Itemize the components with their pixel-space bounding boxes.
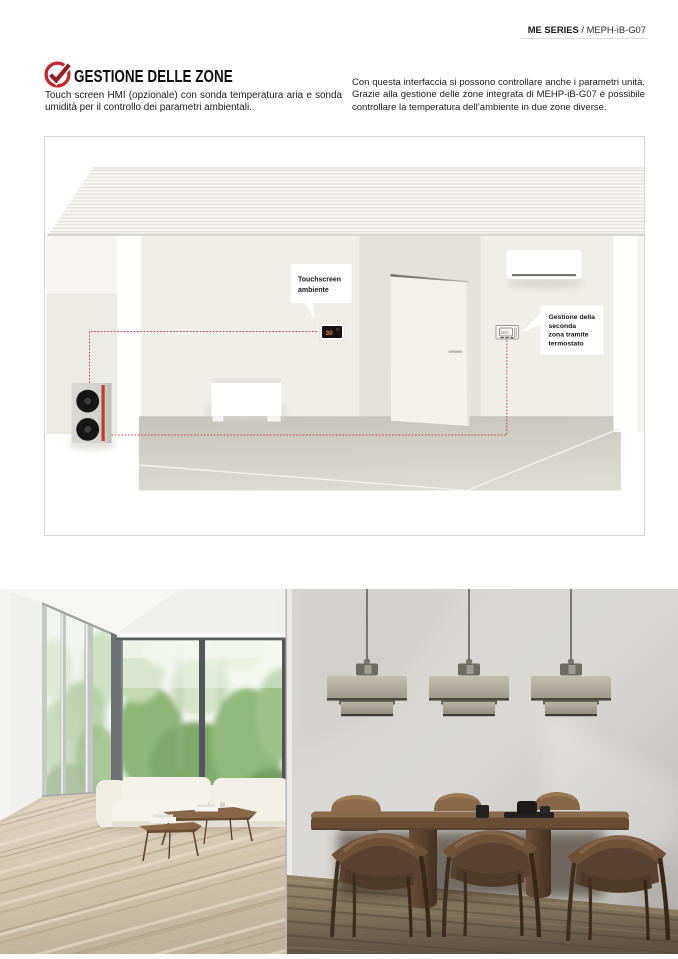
svg-text:20°C: 20°C bbox=[501, 331, 509, 335]
svg-text:seconda: seconda bbox=[549, 323, 577, 330]
svg-text:Gestione della: Gestione della bbox=[549, 314, 596, 321]
svg-text:Touchscreen: Touchscreen bbox=[298, 277, 341, 284]
svg-text:zona tramite: zona tramite bbox=[549, 332, 589, 339]
svg-text:termostato: termostato bbox=[549, 340, 584, 347]
svg-text:30: 30 bbox=[326, 330, 334, 337]
svg-text:50: 50 bbox=[336, 327, 340, 331]
svg-text:ambiente: ambiente bbox=[298, 287, 329, 294]
